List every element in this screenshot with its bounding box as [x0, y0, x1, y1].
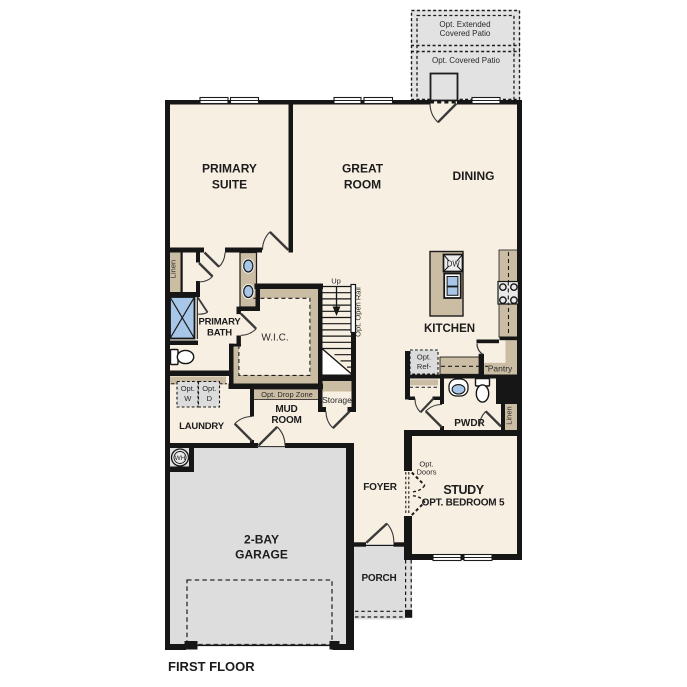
svg-text:SUITE: SUITE — [212, 178, 247, 192]
svg-text:ROOM: ROOM — [344, 178, 381, 192]
svg-text:Opt.: Opt. — [202, 384, 216, 393]
svg-text:Opt. Drop Zone: Opt. Drop Zone — [261, 390, 313, 399]
svg-text:Covered Patio: Covered Patio — [440, 29, 491, 38]
svg-text:GREAT: GREAT — [342, 162, 384, 176]
svg-text:Pantry: Pantry — [488, 364, 513, 374]
svg-text:LAUNDRY: LAUNDRY — [179, 421, 225, 432]
svg-text:FIRST FLOOR: FIRST FLOOR — [168, 659, 255, 674]
svg-text:DINING: DINING — [453, 169, 495, 183]
svg-text:Linen: Linen — [169, 260, 178, 278]
svg-text:Opt.: Opt. — [181, 384, 195, 393]
svg-text:Opt.: Opt. — [417, 353, 431, 362]
svg-text:D: D — [207, 394, 213, 403]
svg-text:OPT. BEDROOM 5: OPT. BEDROOM 5 — [422, 498, 505, 509]
svg-text:FOYER: FOYER — [363, 482, 397, 493]
svg-text:DW: DW — [447, 259, 461, 268]
svg-text:PRIMARY: PRIMARY — [202, 162, 257, 176]
svg-text:PORCH: PORCH — [361, 573, 396, 584]
svg-text:W: W — [184, 394, 192, 403]
svg-text:Opt. Open Rail: Opt. Open Rail — [354, 287, 363, 337]
svg-text:KITCHEN: KITCHEN — [424, 323, 475, 335]
svg-text:PRIMARY: PRIMARY — [198, 317, 241, 328]
svg-text:PWDR: PWDR — [454, 418, 485, 429]
svg-text:GARAGE: GARAGE — [235, 548, 288, 562]
svg-text:2-BAY: 2-BAY — [244, 533, 279, 547]
svg-text:Ref-: Ref- — [417, 362, 432, 371]
svg-text:Linen: Linen — [505, 406, 514, 424]
svg-text:Up: Up — [331, 277, 341, 286]
svg-text:Opt. Extended: Opt. Extended — [439, 20, 490, 29]
svg-text:Storage: Storage — [322, 395, 352, 405]
svg-text:W.I.C.: W.I.C. — [261, 333, 288, 344]
svg-text:Opt. Covered Patio: Opt. Covered Patio — [432, 56, 501, 65]
svg-text:ROOM: ROOM — [271, 415, 301, 426]
svg-text:MUD: MUD — [275, 404, 297, 415]
svg-text:STUDY: STUDY — [443, 483, 484, 497]
svg-text:WH: WH — [175, 455, 186, 462]
svg-text:Doors: Doors — [416, 468, 436, 477]
svg-text:BATH: BATH — [207, 328, 232, 339]
